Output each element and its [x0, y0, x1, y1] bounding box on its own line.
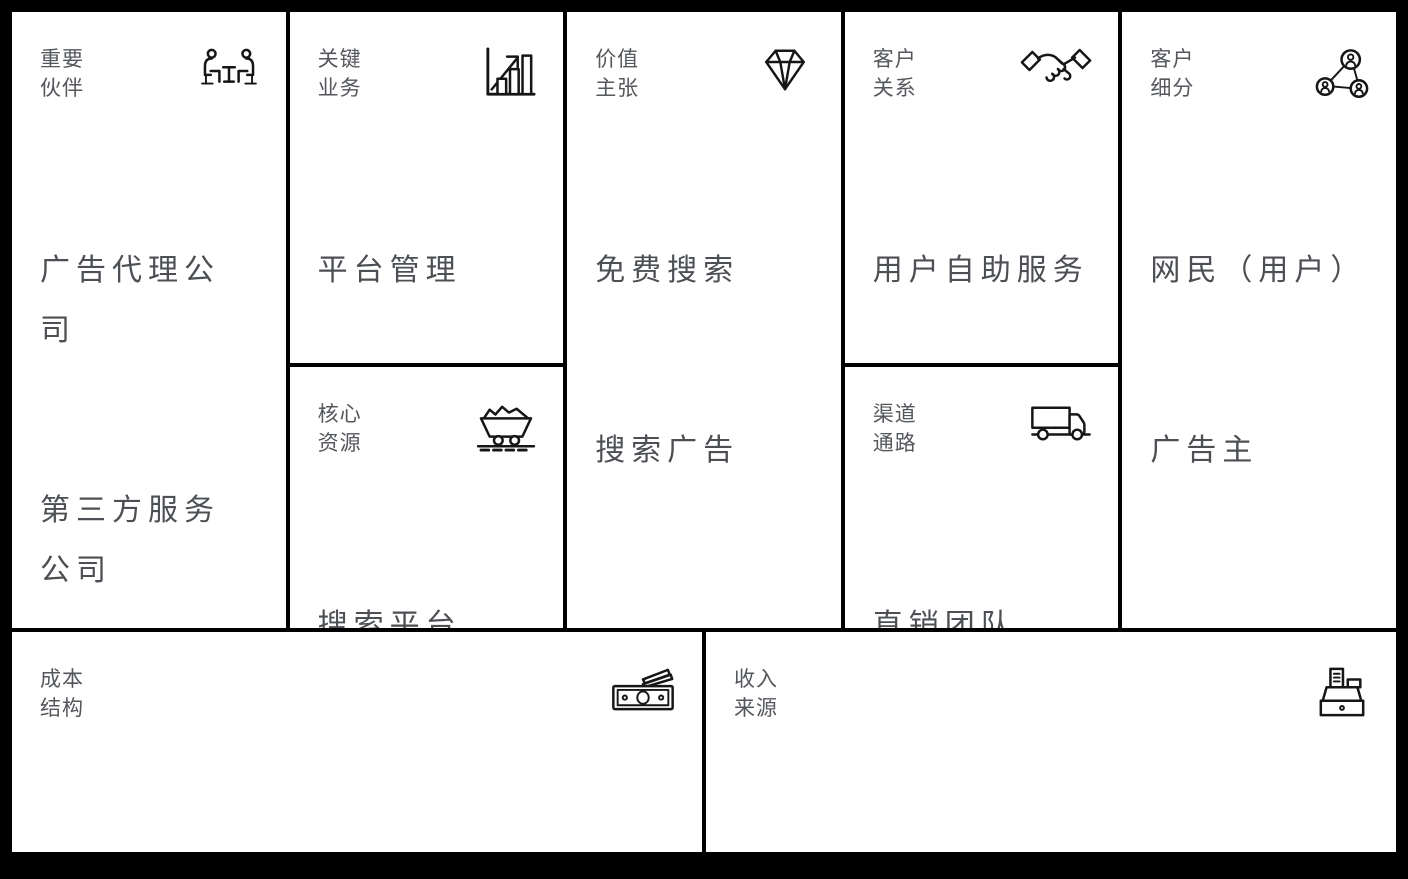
list-item: 免费搜索 [595, 241, 815, 301]
panel-title: 关键 业务 [318, 45, 362, 103]
panel-title: 渠道 通路 [873, 400, 917, 458]
list-item: 用户自助服务 [873, 241, 1093, 301]
panel-header: 客户 细分 [1150, 45, 1370, 103]
mine-cart-icon [475, 402, 537, 452]
panel-header: 收入 来源 [734, 665, 1370, 723]
people-network-icon [1314, 47, 1370, 103]
panel-title: 价值 主张 [595, 45, 639, 103]
cash-register-icon [1314, 667, 1370, 719]
panel-header: 成本 结构 [40, 665, 676, 723]
diamond-icon [755, 47, 815, 92]
panel-customer-segments: 客户 细分 网民（用户） 广告主 [1122, 12, 1396, 628]
panel-cost-structure: 成本 结构 平台成本 研发成本 销售团队人力成本 [12, 632, 702, 852]
panel-header: 重要 伙伴 [40, 45, 260, 103]
panel-revenue-streams: 收入 来源 广告 [706, 632, 1396, 852]
list-item: 搜索广告 [595, 421, 815, 481]
handshake-icon [1020, 47, 1092, 91]
panel-header: 价值 主张 [595, 45, 815, 103]
panel-title: 核心 资源 [318, 400, 362, 458]
list-item: 第三方服务 公司 [40, 481, 260, 601]
panel-title: 收入 来源 [734, 665, 778, 723]
panel-title: 成本 结构 [40, 665, 84, 723]
panel-key-activities: 关键 业务 平台管理 管理服务 创新业务 [290, 12, 564, 363]
panel-channels: 渠道 通路 直销团队 分公司 渠道 [845, 367, 1119, 628]
panel-header: 核心 资源 [318, 400, 538, 458]
panel-items: 平台成本 研发成本 销售团队人力成本 [40, 741, 676, 852]
panel-header: 客户 关系 [873, 45, 1093, 103]
panel-items: 直销团队 分公司 渠道 [873, 476, 1093, 628]
list-item: 广告代理公 司 [40, 241, 260, 361]
list-item: 网民（用户） [1150, 241, 1370, 301]
panel-items: 平台管理 管理服务 创新业务 [318, 121, 538, 363]
panel-items: 网民（用户） 广告主 [1150, 121, 1370, 601]
panel-value-proposition: 价值 主张 免费搜索 搜索广告 [567, 12, 841, 628]
panel-items: 搜索平台 [318, 476, 538, 628]
panel-title: 客户 细分 [1150, 45, 1194, 103]
list-item: 搜索平台 [318, 596, 538, 628]
panel-items: 免费搜索 搜索广告 [595, 121, 815, 601]
panel-items: 广告代理公 司 第三方服务 公司 [40, 121, 260, 628]
panel-title: 重要 伙伴 [40, 45, 84, 103]
panel-key-resources: 核心 资源 搜索平台 [290, 367, 564, 628]
canvas-bottom-grid: 成本 结构 平台成本 研发成本 销售团队人力成本 收入 来源 [12, 632, 1396, 852]
panel-items: 广告 [734, 741, 1370, 852]
meeting-icon [198, 47, 260, 97]
business-model-canvas: 重要 伙伴 广告代理公 司 第三方服务 公司 [12, 12, 1396, 852]
growth-chart-icon [483, 47, 537, 99]
list-item: 广告主 [1150, 421, 1370, 481]
panel-items: 用户自助服务 关键客户管理 渠道代理商 [873, 121, 1093, 363]
list-item: 平台管理 [318, 241, 538, 301]
panel-header: 渠道 通路 [873, 400, 1093, 458]
canvas-top-grid: 重要 伙伴 广告代理公 司 第三方服务 公司 [12, 12, 1396, 628]
truck-icon [1030, 402, 1092, 444]
panel-key-partners: 重要 伙伴 广告代理公 司 第三方服务 公司 [12, 12, 286, 628]
panel-header: 关键 业务 [318, 45, 538, 103]
list-item: 直销团队 [873, 596, 1093, 628]
panel-customer-relationships: 客户 关系 用户自助服务 关键客户管理 渠道代理商 [845, 12, 1119, 363]
panel-title: 客户 关系 [873, 45, 917, 103]
banknotes-icon [610, 667, 676, 711]
